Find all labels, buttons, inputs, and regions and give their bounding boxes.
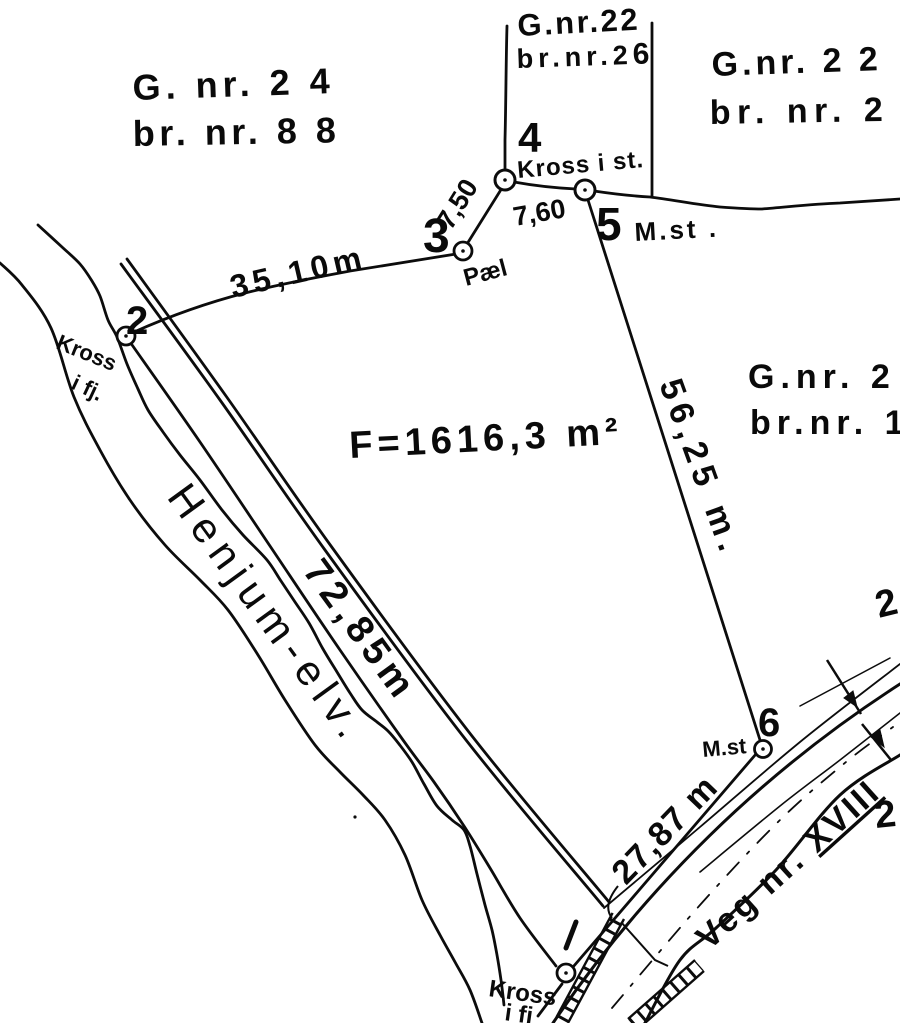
- svg-text:br. nr. 2: br. nr. 2: [709, 91, 889, 132]
- svg-text:4: 4: [518, 114, 542, 161]
- svg-text:5: 5: [596, 198, 622, 250]
- svg-text:i fj: i fj: [503, 999, 534, 1023]
- svg-text:G.nr.22: G.nr.22: [517, 2, 641, 43]
- svg-text:G.nr. 2 2: G.nr. 2 2: [711, 40, 882, 84]
- svg-text:6: 6: [758, 701, 780, 745]
- svg-text:G.nr. 2: G.nr. 2: [748, 358, 896, 396]
- svg-text:br.nr.26: br.nr.26: [516, 37, 655, 75]
- svg-text:M.st: M.st: [701, 733, 748, 762]
- svg-text:G. nr. 2 4: G. nr. 2 4: [132, 60, 335, 108]
- svg-text:br. nr. 8 8: br. nr. 8 8: [132, 109, 340, 154]
- svg-text:3: 3: [423, 210, 450, 263]
- svg-text:br.nr. 1: br.nr. 1: [750, 404, 900, 442]
- svg-text:M.st .: M.st .: [634, 213, 720, 247]
- svg-text:2: 2: [126, 299, 148, 343]
